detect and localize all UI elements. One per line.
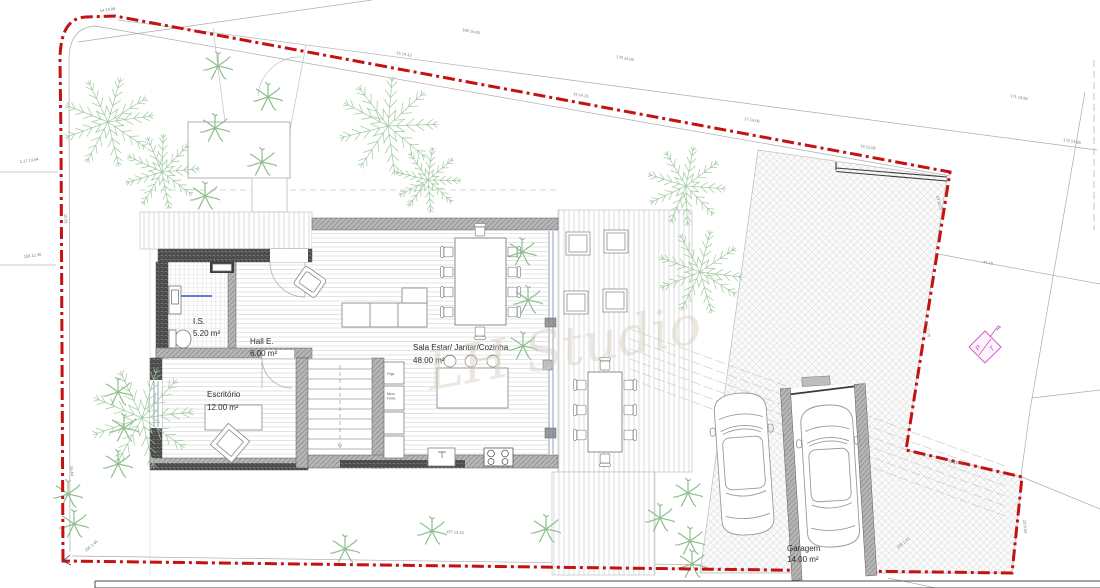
dimension-label: 18 12.08 [860,143,877,151]
dimension-label: 157 14.10 [446,529,465,535]
dimension-label: 156 1.46 [83,538,99,552]
label-is: I.S. [193,317,205,326]
dimension-label: 158 12.35 [23,251,42,259]
dimension-label: 10.81 [63,214,69,225]
floor-plan-canvas: P T I.S. 5.20 m² Hall E. 6.00 m² Escritó… [0,0,1100,588]
label-is-area: 5.20 m² [193,329,220,338]
dimension-label: 172 13.88 [1063,137,1082,145]
pt-marker: P T [969,326,1001,363]
label-fridge: Frigo [387,372,394,376]
dimension-label: 171 13.94 [1010,93,1029,101]
label-micro: Micro [387,392,395,396]
dimension-label: 16 14.15 [573,91,590,99]
label-hall-area: 6.00 m² [250,349,277,358]
road-edge [95,581,1100,588]
label-garage: Garagem [787,544,821,553]
dimension-label: 1.17 13.64 [19,156,39,164]
dimension-label: 15 14.13 [396,50,413,58]
site-plan-drawing: P T I.S. 5.20 m² Hall E. 6.00 m² Escritó… [0,0,1100,588]
label-hall: Hall E. [250,337,274,346]
label-garage-area: 14.00 m² [787,555,819,564]
label-forno: Forno [387,397,396,401]
dimension-label: 166 14.06 [462,27,481,35]
dimension-label: 170 14.06 [616,54,635,62]
dimension-label: 16.44 [69,466,75,477]
dimension-label: 23 9.54 [1022,520,1028,535]
dimension-label: 14 14.08 [99,6,116,13]
dimension-label: 17 14.06 [744,116,761,124]
label-office: Escritório [207,390,241,399]
dimension-label: 41.15 [983,259,994,266]
label-office-area: 12.00 m² [207,403,239,412]
